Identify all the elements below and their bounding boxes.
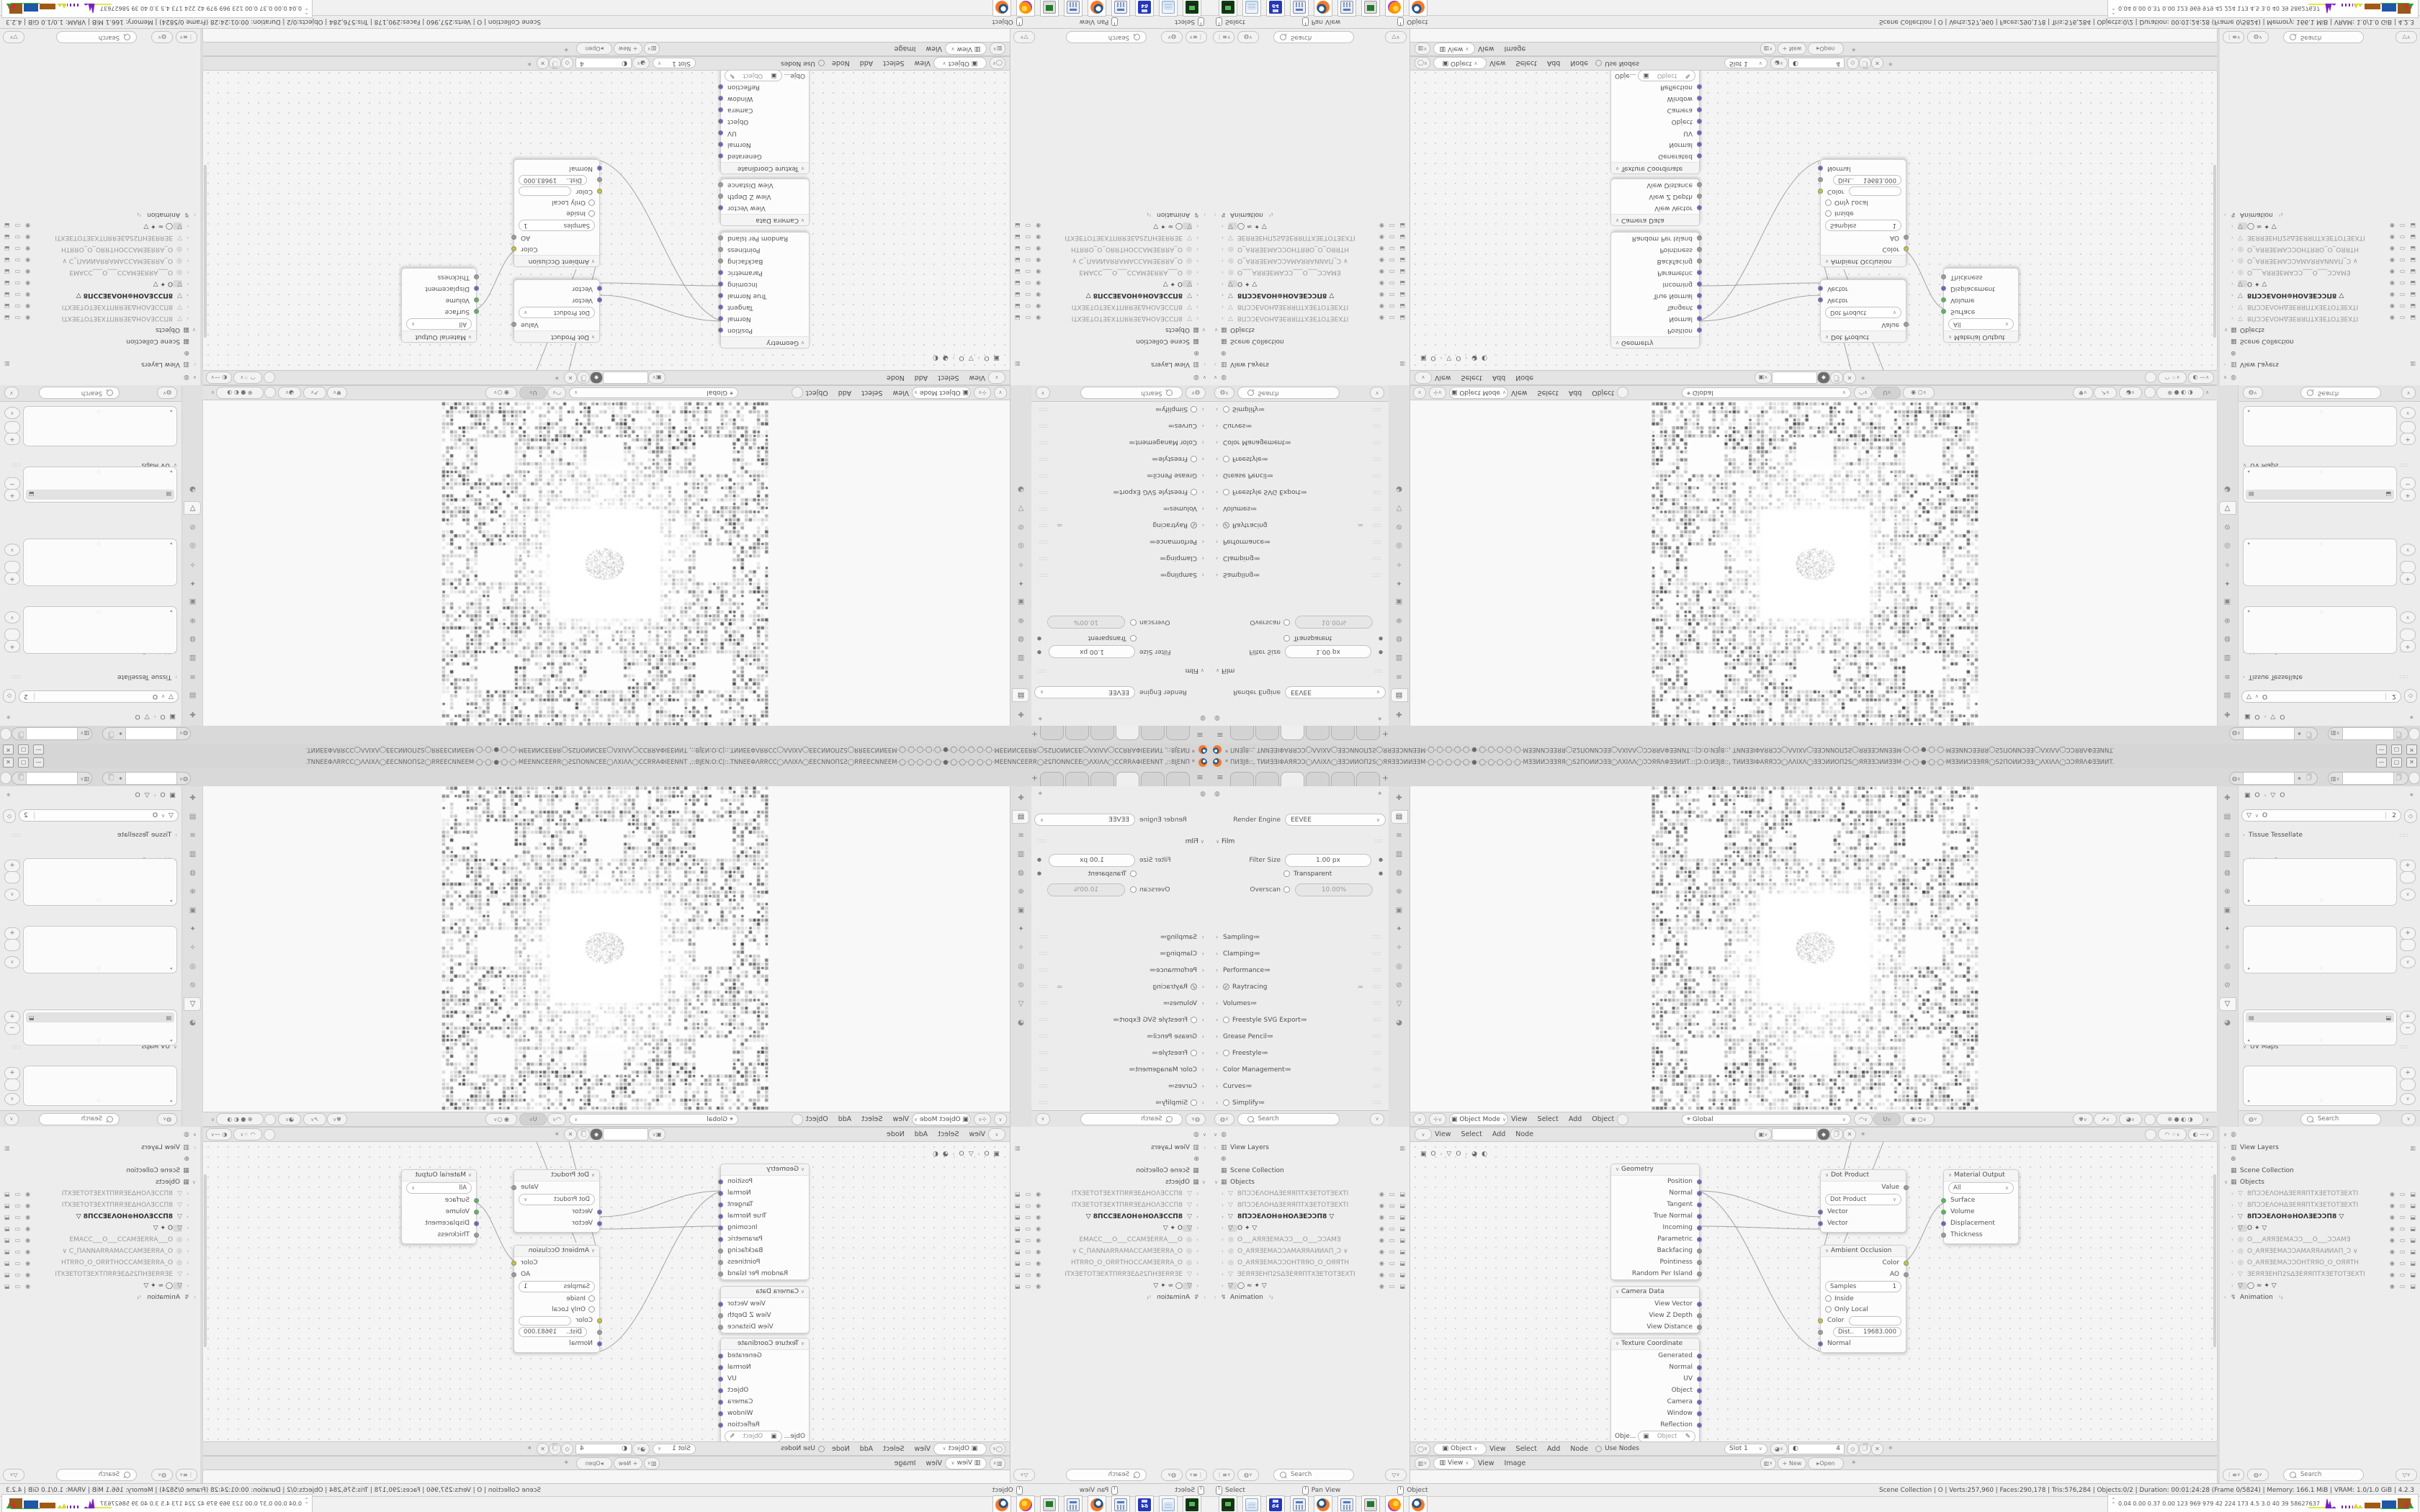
taskbar-app-icon[interactable] xyxy=(1016,0,1035,17)
funnel-dropdown[interactable]: ▽∨ xyxy=(1013,1469,1035,1481)
node-output-socket[interactable]: Camera xyxy=(1611,1396,1699,1408)
minimize-button[interactable]: — xyxy=(33,757,44,768)
eye-icon[interactable]: ◉ xyxy=(25,258,30,264)
screen-icon[interactable]: ▭ xyxy=(15,1214,21,1220)
properties-tab-icon[interactable]: ✦ xyxy=(1013,923,1029,935)
filter-dropdown[interactable]: ◍∨ xyxy=(1214,387,1234,400)
new-tab-button[interactable]: + xyxy=(1380,728,1391,739)
render-engine-dropdown[interactable]: EEVEE∨ xyxy=(1034,686,1135,698)
image-editor-content[interactable] xyxy=(202,29,1010,42)
camera-data-node[interactable]: ∨ Camera Data View VectorView Z DepthVie… xyxy=(1610,179,1700,226)
node-output-socket[interactable]: Random Per Island xyxy=(721,233,809,244)
mode-dropdown[interactable]: ▣ Object Mode ∨ xyxy=(1449,1113,1508,1125)
scene-collection-row[interactable]: ▦Scene Collection xyxy=(1010,336,1210,347)
node-tree-icon-dropdown[interactable]: ▣∨ xyxy=(648,372,665,384)
node-menu-item[interactable]: Select xyxy=(938,1130,959,1138)
screen-icon[interactable]: ▭ xyxy=(1026,1260,1031,1266)
search-circle-button[interactable] xyxy=(1617,1114,1628,1125)
eye-icon[interactable]: ◉ xyxy=(1036,1191,1041,1197)
material-icon-dropdown[interactable]: ◕∨ xyxy=(1770,58,1788,70)
objects-collection-row[interactable]: ∨▦Objects xyxy=(1010,324,1210,336)
snap-circle-button[interactable] xyxy=(264,372,275,384)
properties-tab-icon[interactable]: ▥ xyxy=(1391,848,1407,860)
properties-tab-icon[interactable]: ◎ xyxy=(1391,539,1407,552)
properties-tab-icon[interactable]: ◎ xyxy=(2220,960,2236,973)
image-menu-item[interactable]: Image xyxy=(1505,1459,1526,1467)
camera-icon[interactable]: ⬓ xyxy=(2410,1225,2416,1232)
copy-icon[interactable]: 🗍 xyxy=(2394,773,2404,783)
search-input[interactable] xyxy=(1257,1115,1330,1123)
screen-icon[interactable]: ▭ xyxy=(15,281,21,287)
shape-keys-list[interactable]: ▸∷ xyxy=(2243,926,2397,973)
maximize-button[interactable]: ▢ xyxy=(2391,757,2402,768)
properties-tab-icon[interactable]: ≡ xyxy=(2220,670,2236,683)
node-output-socket[interactable]: Object xyxy=(1611,116,1699,127)
specials-dropdown[interactable]: ∨ xyxy=(4,544,20,556)
node-output-socket[interactable]: AO xyxy=(514,232,599,243)
node-input-socket[interactable]: Surface xyxy=(1944,306,2018,318)
properties-tab-icon[interactable]: ✚ xyxy=(1013,708,1029,720)
render-section-row[interactable]: › Color Management ≔ ∷∷ xyxy=(1210,434,1389,451)
transform-orientation-dropdown[interactable]: ⌖ Global∨ xyxy=(1682,1114,1851,1125)
taskbar-app-icon[interactable] xyxy=(1385,0,1404,17)
outliner-object-row[interactable]: ›◎O_AЯЯƎEMAƆƆOHTЯЯO_O_OЯЯTH ◉▭⬓ xyxy=(1010,1257,1210,1269)
vertex-groups-list[interactable]: ▸∷ xyxy=(23,606,177,654)
animation-row[interactable]: ›↯Animation²₄ xyxy=(1010,1292,1210,1303)
outliner-display-icon[interactable]: ◍ xyxy=(1221,1131,1227,1138)
image-menu-item[interactable]: View xyxy=(926,1459,942,1467)
vector-math-operation-dropdown[interactable]: Dot Product∨ xyxy=(1825,307,1901,318)
properties-tab-icon[interactable]: ⊘ xyxy=(185,521,201,533)
node-title[interactable]: ∨ Material Output xyxy=(402,1170,476,1182)
render-section-row[interactable]: › Performance ≔ ∷∷ xyxy=(1210,962,1389,978)
object-field[interactable]: ▣ Object ✎ xyxy=(1638,1431,1695,1441)
pivot-dropdown[interactable]: ◠∨ xyxy=(547,387,566,399)
node-output-socket[interactable]: Reflection xyxy=(721,1419,809,1431)
add-button[interactable]: + xyxy=(2400,572,2416,585)
hamburger-icon[interactable]: ≡ xyxy=(1214,773,1226,782)
objects-collection-row[interactable]: ∨▦Objects xyxy=(0,1176,200,1188)
properties-tab-icon[interactable]: ⊘ xyxy=(1391,521,1407,533)
node-title[interactable]: ∨ Texture Coordinate xyxy=(721,162,809,174)
scene-collection-row[interactable]: ▦Scene Collection xyxy=(2220,1165,2420,1176)
mode-dropdown[interactable]: ▣ Object Mode ∨ xyxy=(912,387,971,399)
node-title[interactable]: ∨ Ambient Occlusion xyxy=(1821,255,1906,266)
node-output-socket[interactable]: Normal xyxy=(1611,313,1699,325)
shader-node-editor[interactable]: ▣ O› ▽ O› ◕ ◐ xyxy=(202,1142,1010,1441)
fake-user-button[interactable]: ◇ xyxy=(3,689,16,703)
pin-icon[interactable]: ✶ xyxy=(1860,1131,1866,1138)
mesh-name-field[interactable]: ▽∨ O 2 xyxy=(19,690,179,703)
outliner-object-row[interactable]: ›▽8ПƆƆEΛOHΔƎEЯЯПTXƎETOTƎEXTI ◉▭⬓ xyxy=(1210,1188,1410,1200)
properties-tab-icon[interactable]: ◎ xyxy=(2220,539,2236,552)
properties-tab-icon[interactable]: ▥ xyxy=(1013,848,1029,860)
node-output-socket[interactable]: Random Per Island xyxy=(721,1268,809,1279)
camera-icon[interactable]: ⬓ xyxy=(1399,304,1405,310)
node-menu-item[interactable]: Select xyxy=(1516,1445,1537,1453)
screen-icon[interactable]: ▭ xyxy=(1026,1202,1031,1209)
node-output-socket[interactable]: True Normal xyxy=(721,290,809,302)
eye-icon[interactable]: ◉ xyxy=(25,315,30,322)
image-menu-item[interactable]: Image xyxy=(1505,45,1526,53)
outliner-object-row[interactable]: ›▽O ✦ ▽ ◉▭⬓ xyxy=(0,278,200,289)
datablock-selector-1[interactable]: ◍∨ ✶ 🗍 xyxy=(2229,727,2318,740)
search-box[interactable] xyxy=(1066,1469,1147,1481)
camera-icon[interactable]: ⬓ xyxy=(2410,1214,2416,1220)
outliner-object-row[interactable]: ›▽O ✦ ▽ ◉▭⬓ xyxy=(0,1223,200,1234)
hamburger-icon[interactable]: ≡ xyxy=(1194,730,1206,739)
eye-icon[interactable]: ◉ xyxy=(2390,246,2395,253)
properties-tab-icon[interactable]: ◎ xyxy=(1013,539,1029,552)
scene-collection-row[interactable]: ▦Scene Collection xyxy=(1010,1165,1210,1176)
node-output-socket[interactable]: Window xyxy=(721,1408,809,1419)
render-section-row[interactable]: › Curves ≔ ∷∷ xyxy=(1210,418,1389,434)
outliner-search-input[interactable] xyxy=(63,1470,121,1479)
render-section-row[interactable]: › Volumes ≔ ∷∷ xyxy=(1210,995,1389,1012)
outliner-object-row[interactable]: ›◎O___AЯЯƎEMAƆƆ___O___ƆƆAMƎ ◉▭⬓ xyxy=(1010,266,1210,278)
fake-user-shield-button[interactable]: ◆ xyxy=(590,1128,603,1140)
properties-tab-icon[interactable]: ⊕ xyxy=(1013,886,1029,898)
image-icon-dropdown[interactable]: ▥∨ xyxy=(1760,1457,1776,1470)
material-icon-dropdown[interactable]: ◕∨ xyxy=(1770,1443,1788,1455)
view-mode-dropdown[interactable]: ▥ View ∨ xyxy=(945,1457,987,1470)
render-section-row[interactable]: › Clamping ≔ ∷∷ xyxy=(1031,945,1210,962)
taskbar-app-icon[interactable] xyxy=(1409,1495,1428,1512)
snap-node-toggle[interactable]: ◠ ⁘∨ xyxy=(233,1128,262,1140)
camera-icon[interactable]: ⬓ xyxy=(2410,292,2416,299)
viewport-3d[interactable] xyxy=(202,786,1010,1112)
properties-tab-icon[interactable]: ⊘ xyxy=(1391,979,1407,991)
samples-field[interactable]: Samples1 xyxy=(1825,1281,1901,1292)
node-output-socket[interactable]: UV xyxy=(1611,127,1699,139)
pin-icon[interactable]: ✶ xyxy=(1037,714,1043,721)
properties-tab-icon[interactable]: ◍ xyxy=(2220,867,2236,879)
copy-icon[interactable]: 🗍 xyxy=(16,729,26,739)
editor-type-dropdown[interactable]: ◯∨ xyxy=(990,1443,1005,1455)
node-output-socket[interactable]: Generated xyxy=(1611,1350,1699,1362)
outliner-search-input[interactable] xyxy=(2299,1470,2357,1479)
transparent-checkbox[interactable] xyxy=(1130,635,1137,642)
outliner-object-row[interactable]: ›▽O ✦ ▽ ◉▭⬓ xyxy=(1010,278,1210,289)
object-context-dropdown[interactable]: ▣ Object ∨ xyxy=(1433,1443,1487,1455)
node-input-socket[interactable]: Surface xyxy=(402,306,476,318)
node-output-socket[interactable]: UV xyxy=(1611,1373,1699,1385)
properties-tab-icon[interactable]: ◕ xyxy=(2220,1017,2236,1029)
only-local-checkbox[interactable]: Only Local xyxy=(1821,1304,1906,1315)
samples-field[interactable]: Samples1 xyxy=(1825,220,1901,231)
node-tree-icon-dropdown[interactable]: ▣∨ xyxy=(648,1128,665,1140)
node-menu-item[interactable]: View xyxy=(1489,60,1506,68)
node-output-socket[interactable]: Incoming xyxy=(1611,1222,1699,1233)
camera-icon[interactable]: ⬓ xyxy=(1015,223,1021,230)
target-dropdown[interactable]: All∨ xyxy=(1948,318,2014,330)
search-circle-button[interactable] xyxy=(792,387,803,399)
shape-keys-list[interactable]: ▸∷ xyxy=(23,539,177,586)
remove-button[interactable] xyxy=(4,871,20,883)
node-output-socket[interactable]: Value xyxy=(1821,1182,1906,1193)
scene-collection-row[interactable]: ▦Scene Collection xyxy=(0,1165,200,1176)
properties-tab-icon[interactable]: ✧ xyxy=(2220,942,2236,954)
object-context-dropdown[interactable]: ▣ Object ∨ xyxy=(933,1443,987,1455)
render-section-row[interactable]: › Performance ≔ ∷∷ xyxy=(1210,534,1389,550)
animate-dot-icon[interactable]: ● xyxy=(1037,870,1041,876)
properties-tab-icon[interactable]: ▽ xyxy=(1391,502,1407,514)
tab-6[interactable] xyxy=(1356,726,1380,740)
screen-icon[interactable]: ▭ xyxy=(2400,1272,2406,1278)
render-section-row[interactable]: › Freestyle ≔ ∷∷ xyxy=(1210,451,1389,467)
properties-tab-icon[interactable]: ▣ xyxy=(2220,595,2236,608)
pin-icon[interactable]: ✶ xyxy=(2408,792,2414,799)
node-output-socket[interactable]: Backfacing xyxy=(721,256,809,267)
properties-tab-icon[interactable]: ◍ xyxy=(185,633,201,645)
material-output-node[interactable]: ∨ Material Output All∨ SurfaceVolumeDisp… xyxy=(401,268,477,343)
node-output-socket[interactable]: Position xyxy=(721,325,809,336)
node-output-socket[interactable]: Reflection xyxy=(1611,1419,1699,1431)
tab-5[interactable] xyxy=(1065,772,1089,786)
datablock-field-2[interactable] xyxy=(2342,773,2394,784)
texture-coordinate-node[interactable]: ∨ Texture Coordinate GeneratedNormalUVOb… xyxy=(1610,1338,1700,1441)
node-menu-item[interactable]: Select xyxy=(1516,60,1537,68)
node-output-socket[interactable]: Value xyxy=(1821,319,1906,330)
taskbar-app-icon[interactable] xyxy=(1135,1495,1154,1512)
properties-tab-icon[interactable]: ≡ xyxy=(1391,829,1407,842)
outliner-object-row[interactable]: ›▽8ПƆƆEΛOHΔƎEЯЯПTXƎETOTƎEXTI ◉▭⬓ xyxy=(0,301,200,312)
camera-icon[interactable]: ⬓ xyxy=(4,1225,10,1232)
node-title[interactable]: ∨ Material Output xyxy=(402,330,476,342)
search-input[interactable] xyxy=(1090,389,1164,397)
camera-icon[interactable]: ⬓ xyxy=(4,1191,10,1197)
screen-icon[interactable]: ▭ xyxy=(1026,1214,1031,1220)
animate-dot-icon[interactable]: ● xyxy=(1037,636,1041,642)
eye-icon[interactable]: ◉ xyxy=(1379,223,1384,230)
camera-icon[interactable]: ⬓ xyxy=(2410,1260,2416,1266)
image-editor-content[interactable] xyxy=(202,1470,1010,1483)
outliner-object-row[interactable]: ›▽O ✦ ▽ ◉▭⬓ xyxy=(1010,1223,1210,1234)
eye-icon[interactable]: ◉ xyxy=(1036,1248,1041,1255)
taskbar-app-icon[interactable] xyxy=(1242,1495,1261,1512)
viewport-menu-item[interactable]: Add xyxy=(838,389,851,397)
material-name-field[interactable]: ◐4 xyxy=(575,58,632,69)
material-icon-dropdown[interactable]: ◕∨ xyxy=(632,58,650,70)
specials-dropdown[interactable]: ∨ xyxy=(4,611,20,624)
node-input-socket[interactable]: Displacement xyxy=(1944,283,2018,294)
target-dropdown[interactable]: All∨ xyxy=(1948,1182,2014,1194)
viewport-menu-item[interactable]: Object xyxy=(806,1115,828,1123)
dot-product-node[interactable]: ∨ Dot Product Value Dot Product∨ VectorV… xyxy=(514,1169,600,1233)
outliner-object-row[interactable]: ›◎O_AЯЯƎEMAƆƆAMAЯЯAИИAП_Ɔ ∨ ◉▭⬓ xyxy=(0,1246,200,1257)
inside-checkbox[interactable]: Inside xyxy=(514,208,599,219)
pin-icon[interactable]: ✶ xyxy=(563,1459,569,1467)
datablock-field-1[interactable] xyxy=(2243,728,2295,739)
viewport-menu-item[interactable]: View xyxy=(1511,1115,1528,1123)
view-layers-row[interactable]: ›▥View Layers▥ xyxy=(2220,1142,2420,1153)
screen-icon[interactable]: ▭ xyxy=(1026,1237,1031,1243)
tab-4[interactable] xyxy=(1306,726,1330,740)
inside-checkbox[interactable]: Inside xyxy=(514,1293,599,1304)
copy-button[interactable]: 🗍 xyxy=(577,1128,590,1140)
outliner-search-input[interactable] xyxy=(1289,33,1348,42)
camera-icon[interactable]: ⬓ xyxy=(1015,1214,1021,1220)
mesh-name-field[interactable]: ▽∨ O 2 xyxy=(2241,690,2401,703)
properties-tab-icon[interactable]: ▥ xyxy=(185,848,201,860)
animation-row[interactable]: ›↯Animation²₄ xyxy=(2220,209,2420,220)
camera-icon[interactable]: ⬓ xyxy=(2410,258,2416,264)
render-section-row[interactable]: › Freestyle ≔ ∷∷ xyxy=(1031,1045,1210,1061)
color-swatch[interactable] xyxy=(1849,187,1902,197)
add-button[interactable]: + xyxy=(4,860,20,872)
options-dropdown[interactable]: ∨ xyxy=(1036,1113,1050,1125)
eye-icon[interactable]: ◉ xyxy=(25,281,30,287)
eye-icon[interactable]: ◉ xyxy=(25,1191,30,1197)
camera-icon[interactable]: ⬓ xyxy=(4,258,10,264)
outliner-object-row[interactable]: ›▽O ✦ ▽ ◉▭⬓ xyxy=(2220,1223,2420,1234)
properties-tab-icon[interactable]: ▽ xyxy=(1391,998,1407,1010)
only-local-checkbox[interactable]: Only Local xyxy=(514,1304,599,1315)
vertex-groups-list[interactable]: ▸∷ xyxy=(23,858,177,906)
camera-icon[interactable]: ⬓ xyxy=(4,1248,10,1255)
properties-tab-icon[interactable]: ◍ xyxy=(1013,867,1029,879)
node-menu-item[interactable]: Select xyxy=(883,60,904,68)
properties-tab-icon[interactable]: ≡ xyxy=(185,829,201,842)
snap-node-toggle[interactable]: ◠ ⁘∨ xyxy=(2158,372,2187,384)
inside-checkbox[interactable]: Inside xyxy=(1821,1293,1906,1304)
node-output-socket[interactable]: Color xyxy=(514,1257,599,1269)
screen-icon[interactable]: ▭ xyxy=(2400,1237,2406,1243)
filter-icon-dropdown[interactable]: ◍∨ xyxy=(2247,32,2269,44)
editor-type-dropdown[interactable]: ∨ xyxy=(1413,1113,1426,1125)
interaction-dropdown[interactable]: ⊹∨ xyxy=(1429,387,1446,399)
node-output-socket[interactable]: Object xyxy=(1611,1385,1699,1396)
view-layers-row[interactable]: ›▥View Layers▥ xyxy=(1210,359,1410,370)
filter-icon-dropdown[interactable]: ◍∨ xyxy=(1237,32,1259,44)
render-section-row[interactable]: › Raytracing ≔ ∷∷ xyxy=(1210,517,1389,534)
node-output-socket[interactable]: AO xyxy=(1821,1269,1906,1280)
outliner-object-row[interactable]: ›▽8ПƆƆEΛOHΔƎEЯЯПTXƎETOTƎEXTI ◉▭⬓ xyxy=(2220,1188,2420,1200)
properties-tab-icon[interactable]: ▤ xyxy=(2220,689,2236,701)
hamburger-icon[interactable]: ≡ xyxy=(1214,730,1226,739)
properties-tab-icon[interactable]: ✧ xyxy=(1013,942,1029,954)
snap-toggle[interactable]: U∨ xyxy=(1873,1113,1901,1125)
properties-tab-icon[interactable]: ▣ xyxy=(1391,904,1407,917)
search-box[interactable] xyxy=(1273,32,1354,44)
collapse-chevron[interactable]: ∨ xyxy=(193,375,197,381)
color-input-socket[interactable]: Color xyxy=(1821,186,1906,197)
collapse-chevron[interactable]: ∨ xyxy=(1214,1132,1217,1138)
pin-icon[interactable]: ✶ xyxy=(6,713,12,720)
screen-icon[interactable]: ▭ xyxy=(2400,258,2406,264)
taskbar-app-icon[interactable] xyxy=(1361,1495,1380,1512)
screen-icon[interactable]: ▭ xyxy=(1389,1237,1395,1243)
node-menu-item[interactable]: Add xyxy=(860,1445,873,1453)
interaction-dropdown[interactable]: ⊹∨ xyxy=(1429,1113,1446,1125)
editor-type-dropdown[interactable]: ∨ xyxy=(1413,387,1426,399)
outliner-object-row[interactable]: ›▽◯ ≈ ✦ ▽ ◉▭⬓ xyxy=(0,1280,200,1292)
users-count[interactable]: 2 xyxy=(2385,693,2396,701)
properties-tab-icon[interactable]: ⊕ xyxy=(2220,886,2236,898)
camera-icon[interactable]: ⬓ xyxy=(1015,1272,1021,1278)
outliner-display-icon[interactable]: ◍ xyxy=(184,374,189,382)
node-output-socket[interactable]: Parametric xyxy=(1611,267,1699,279)
unlink-button[interactable]: ✕ xyxy=(564,372,577,384)
screen-icon[interactable]: ▭ xyxy=(15,269,21,276)
mesh-name-field[interactable]: ▽∨ O 2 xyxy=(2241,809,2401,822)
outliner-object-row[interactable]: ›▽8ПƆƆEΛOHΔƎEЯЯПTXƎETOTƎEXTI ◉▭⬓ xyxy=(1210,312,1410,324)
eye-icon[interactable]: ◉ xyxy=(1036,235,1041,241)
node-output-socket[interactable]: Incoming xyxy=(721,1222,809,1233)
new-tab-button[interactable]: + xyxy=(1380,773,1391,784)
properties-tab-icon[interactable]: ⊘ xyxy=(1013,521,1029,533)
overscan-checkbox[interactable] xyxy=(1283,886,1290,893)
color-input-socket[interactable]: Color xyxy=(514,1315,599,1326)
screen-icon[interactable]: ▭ xyxy=(1389,246,1395,253)
remove-button[interactable] xyxy=(2400,421,2416,433)
screen-icon[interactable]: ▭ xyxy=(15,1272,21,1278)
tab-4[interactable] xyxy=(1090,772,1114,786)
properties-tab-icon[interactable]: ◎ xyxy=(185,960,201,973)
minimize-button[interactable]: — xyxy=(33,744,44,755)
taskbar-app-icon[interactable] xyxy=(1040,0,1059,17)
node-title[interactable]: ∨ Material Output xyxy=(1944,330,2018,342)
filter-dropdown[interactable]: ◍∨ xyxy=(2243,387,2263,400)
tab-2[interactable] xyxy=(1141,726,1165,740)
tab-5[interactable] xyxy=(1331,726,1355,740)
render-section-row[interactable]: › Grease Pencil ≔ ∷∷ xyxy=(1031,467,1210,484)
outliner-object-row[interactable]: ›▽8ПƆƆEΛOHΔƎEЯЯПTXƎETOTƎEXTI ◉▭⬓ xyxy=(2220,301,2420,312)
color-swatch[interactable] xyxy=(1849,1316,1902,1326)
camera-icon[interactable]: ⬓ xyxy=(1015,292,1021,299)
material-output-node[interactable]: ∨ Material Output All∨ SurfaceVolumeDisp… xyxy=(1943,1169,2019,1244)
node-input-socket[interactable]: Vector xyxy=(514,283,599,294)
camera-icon[interactable]: ⬓ xyxy=(2410,1202,2416,1209)
screen-icon[interactable]: ▭ xyxy=(1026,1225,1031,1232)
taskbar-app-icon[interactable] xyxy=(1111,0,1130,17)
viewport-menu-item[interactable]: Object xyxy=(1592,1115,1614,1123)
image-editor-content[interactable] xyxy=(1410,29,2218,42)
properties-tab-icon[interactable]: ⊘ xyxy=(2220,979,2236,991)
outliner-object-row[interactable]: ›◎O___AЯЯƎEMAƆƆ___O___ƆƆAMƎ ◉▭⬓ xyxy=(1010,1234,1210,1246)
options-dropdown[interactable]: ∨ xyxy=(4,387,19,400)
node-output-socket[interactable]: Window xyxy=(1611,1408,1699,1419)
properties-tab-icon[interactable]: ✦ xyxy=(185,923,201,935)
shield-button[interactable]: ◇ xyxy=(1847,58,1859,70)
camera-icon[interactable]: ⬓ xyxy=(1399,1248,1405,1255)
animate-dot-icon[interactable]: ● xyxy=(1037,857,1041,863)
outliner-object-row[interactable]: ›▽◯ ≈ ✦ ▽ ◉▭⬓ xyxy=(0,220,200,232)
shading-options-chevron[interactable]: ∨ xyxy=(211,1117,215,1122)
remove-button[interactable] xyxy=(4,1079,20,1091)
camera-icon[interactable]: ⬓ xyxy=(2410,304,2416,310)
unlink-button[interactable]: ✕ xyxy=(1843,372,1856,384)
slot-dropdown[interactable]: Slot 1∨ xyxy=(1724,1444,1767,1454)
samples-field[interactable]: Samples1 xyxy=(519,1281,595,1292)
node-output-socket[interactable]: Backfacing xyxy=(721,1245,809,1256)
outliner-object-row[interactable]: ›◎O_AЯЯƎEMAƆƆAMAЯЯAИИAП_Ɔ ∨ ◉▭⬓ xyxy=(1210,255,1410,266)
uv-map-item[interactable]: ▤⬓ xyxy=(2246,490,2394,500)
ambient-occlusion-node[interactable]: ∨ Ambient Occlusion ColorAO Samples1 Ins… xyxy=(514,1245,600,1353)
eye-icon[interactable]: ◉ xyxy=(1036,1237,1041,1243)
scene-collection-row[interactable]: ▦Scene Collection xyxy=(1210,1165,1410,1176)
properties-tab-icon[interactable]: ▤ xyxy=(1391,811,1407,823)
tab-2[interactable] xyxy=(1255,772,1279,786)
eye-icon[interactable]: ◉ xyxy=(1036,315,1041,322)
node-output-socket[interactable]: Parametric xyxy=(721,267,809,279)
extra-round-button[interactable] xyxy=(0,772,12,784)
display-mode-dropdown[interactable]: ⋮≡∨ xyxy=(176,32,197,44)
screen-icon[interactable]: ▭ xyxy=(1026,1272,1031,1278)
outliner-object-row[interactable]: ›◎O___AЯЯƎEMAƆƆ___O___ƆƆAMƎ ◉▭⬓ xyxy=(2220,266,2420,278)
eye-icon[interactable]: ◉ xyxy=(1379,1283,1384,1290)
node-output-socket[interactable]: UV xyxy=(721,127,809,139)
